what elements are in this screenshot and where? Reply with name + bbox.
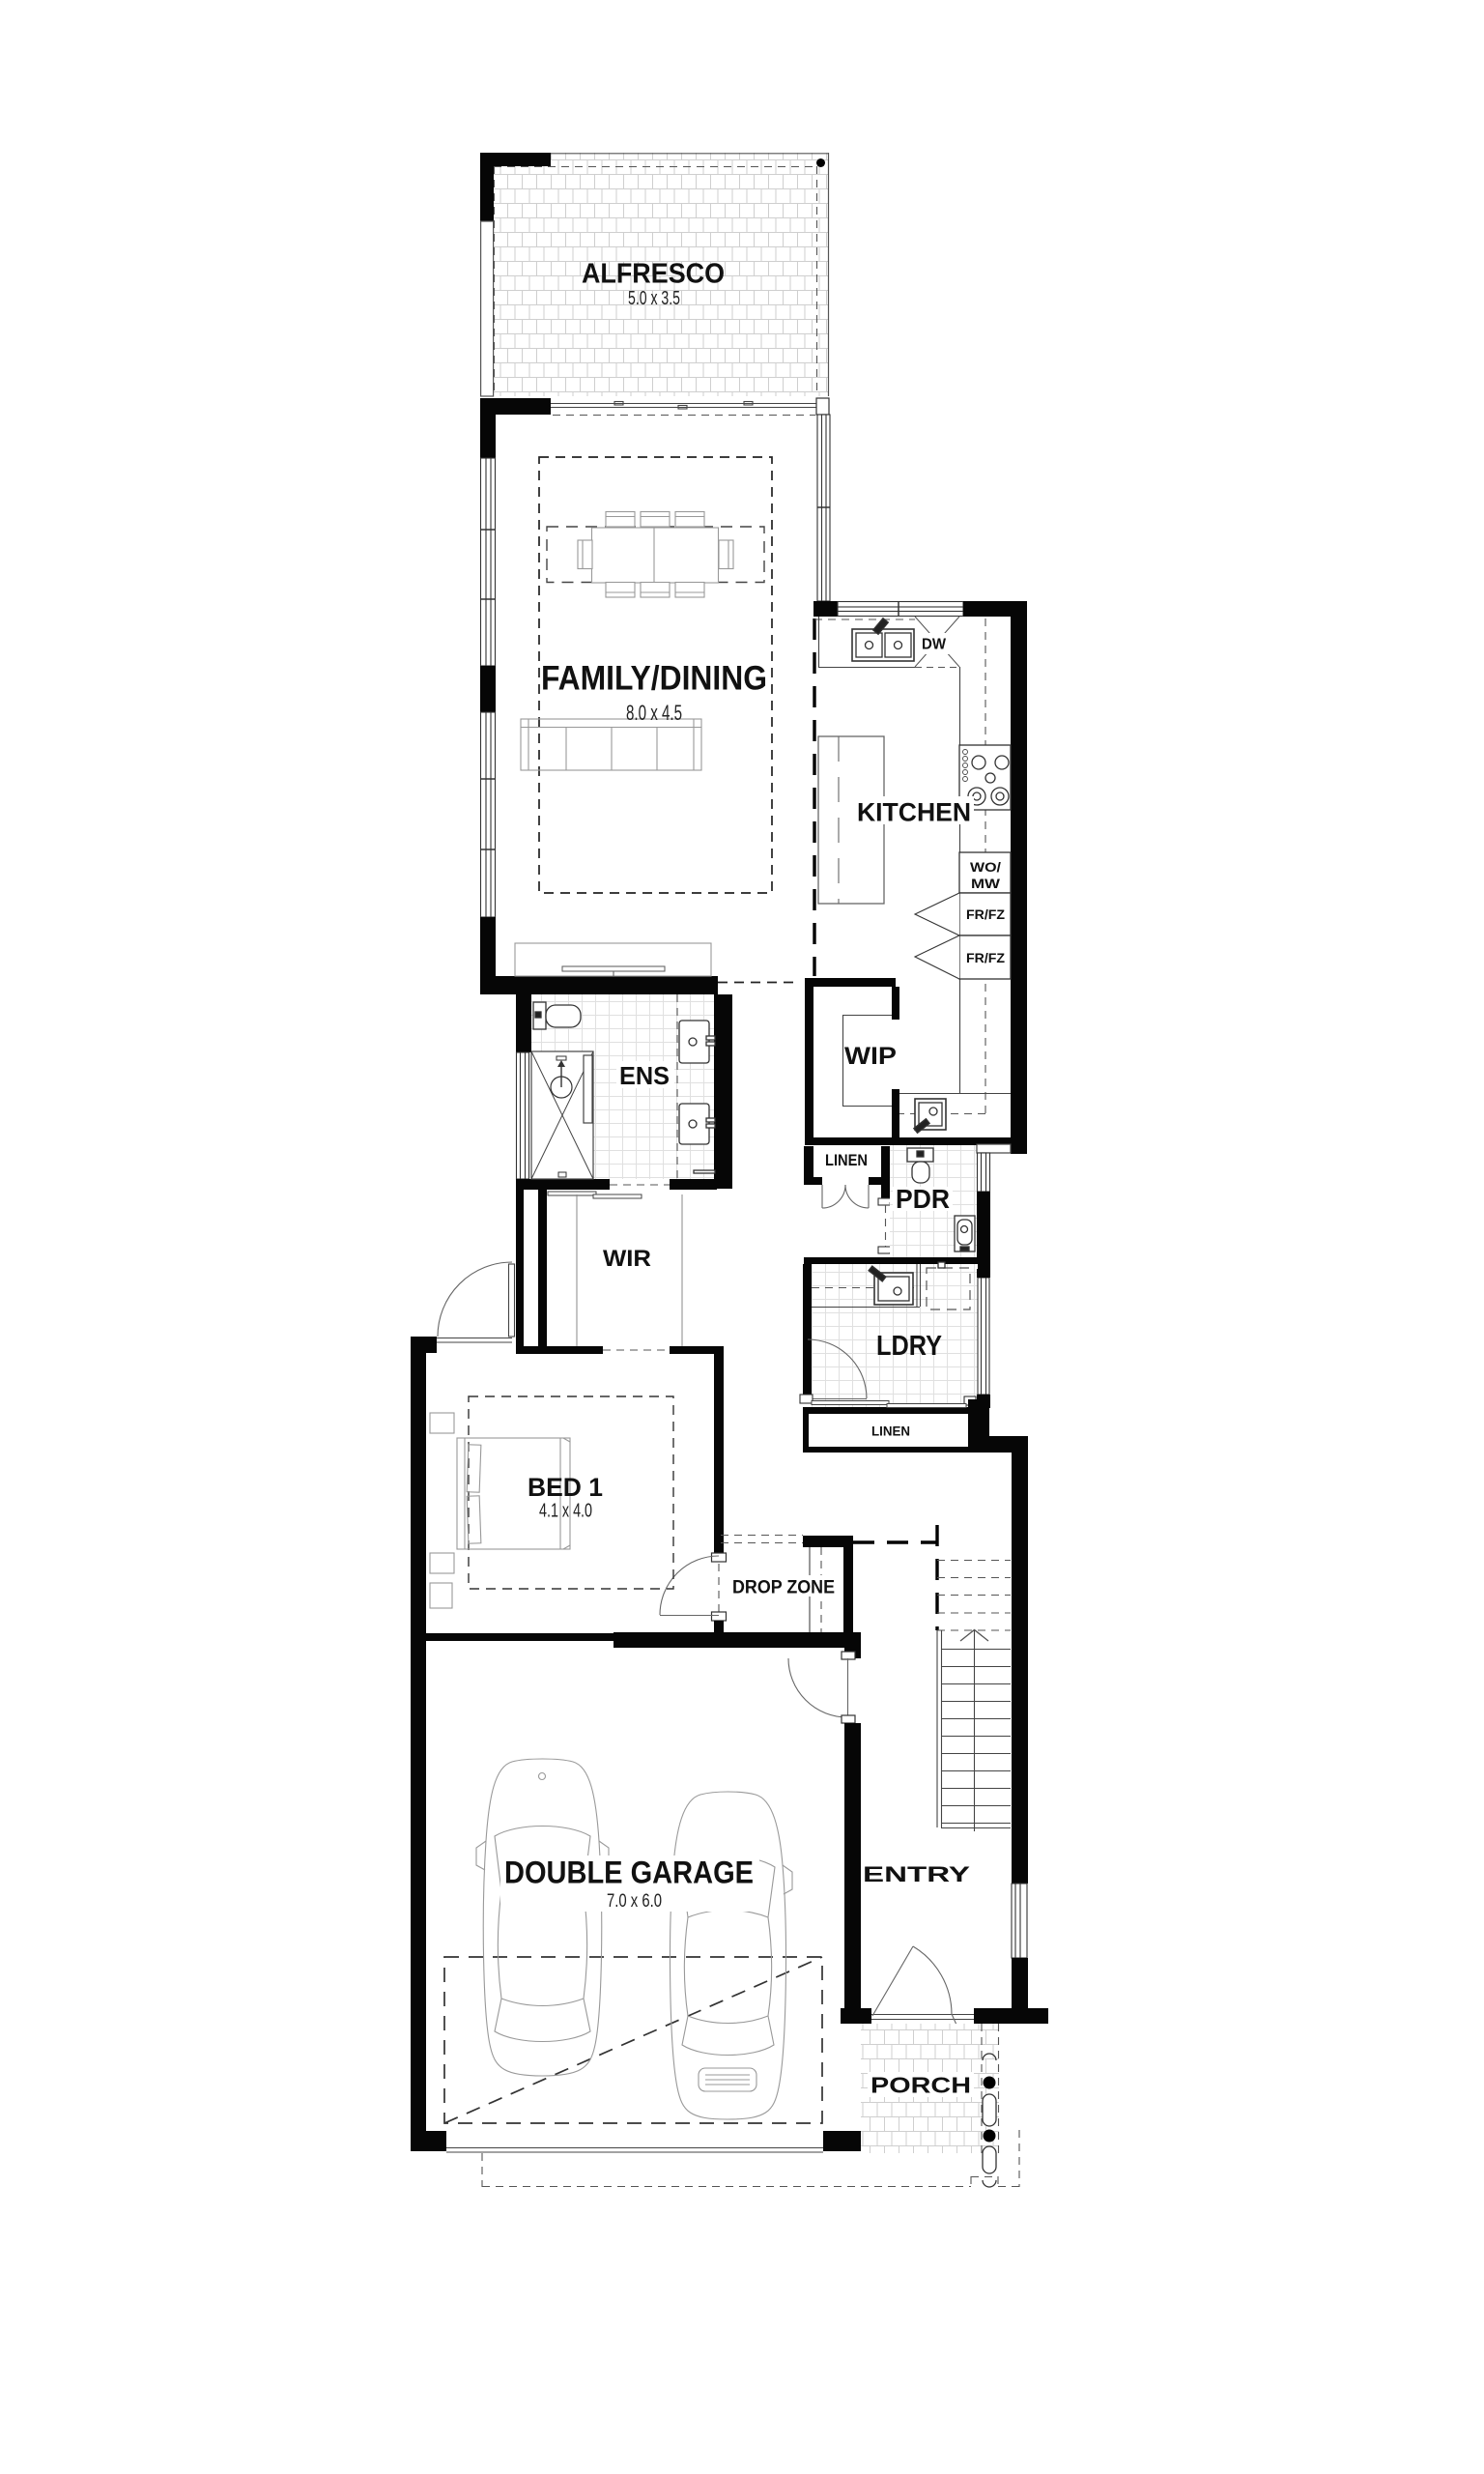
svg-text:BED 1: BED 1 [528, 1473, 603, 1502]
svg-text:FAMILY/DINING: FAMILY/DINING [541, 660, 767, 698]
svg-text:ENTRY: ENTRY [863, 1862, 970, 1886]
svg-text:4.1 x 4.0: 4.1 x 4.0 [539, 1501, 592, 1522]
svg-text:FR/FZ: FR/FZ [966, 950, 1005, 965]
svg-text:WIR: WIR [603, 1246, 651, 1272]
svg-text:KITCHEN: KITCHEN [857, 798, 971, 827]
svg-text:LINEN: LINEN [871, 1424, 910, 1439]
svg-text:FR/FZ: FR/FZ [966, 906, 1005, 922]
svg-text:DROP ZONE: DROP ZONE [732, 1577, 835, 1598]
svg-text:LDRY: LDRY [876, 1331, 942, 1362]
svg-text:PDR: PDR [896, 1184, 950, 1214]
svg-text:8.0 x 4.5: 8.0 x 4.5 [626, 701, 682, 725]
svg-text:DOUBLE GARAGE: DOUBLE GARAGE [504, 1855, 754, 1890]
svg-text:LINEN: LINEN [825, 1152, 868, 1169]
svg-text:ALFRESCO: ALFRESCO [582, 259, 725, 290]
svg-text:5.0 x 3.5: 5.0 x 3.5 [628, 288, 680, 309]
svg-text:WO/: WO/ [970, 859, 1001, 875]
svg-text:WIP: WIP [844, 1043, 897, 1070]
svg-text:ENS: ENS [619, 1061, 670, 1090]
svg-text:7.0 x 6.0: 7.0 x 6.0 [607, 1891, 662, 1912]
svg-text:DW: DW [922, 637, 946, 653]
svg-text:PORCH: PORCH [870, 2073, 971, 2098]
svg-text:MW: MW [971, 876, 1001, 891]
